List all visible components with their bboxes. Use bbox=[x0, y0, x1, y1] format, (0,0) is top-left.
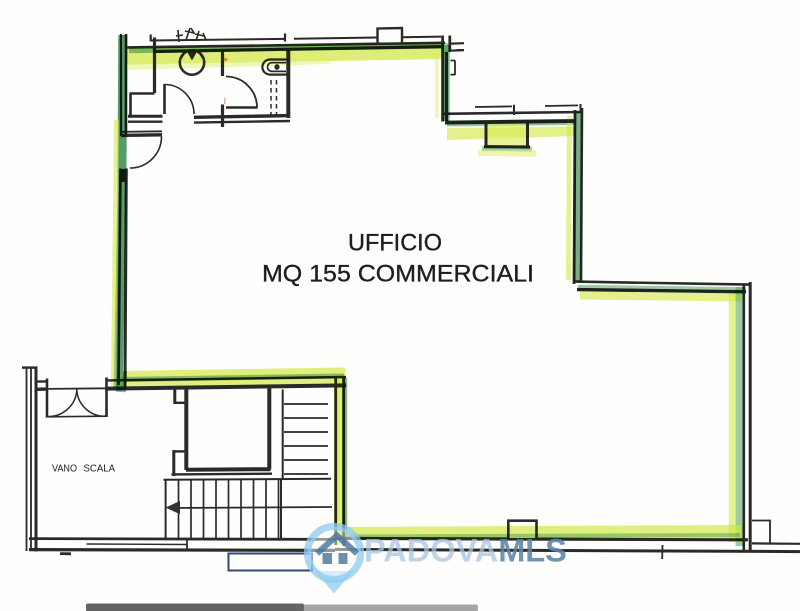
svg-text:VANO: VANO bbox=[52, 463, 77, 475]
svg-text:SCALA: SCALA bbox=[84, 463, 116, 475]
svg-text:PADOVAMLS: PADOVAMLS bbox=[364, 533, 567, 569]
svg-text:UFFICIO: UFFICIO bbox=[348, 230, 442, 257]
svg-text:MQ 155 COMMERCIALI: MQ 155 COMMERCIALI bbox=[262, 261, 534, 288]
